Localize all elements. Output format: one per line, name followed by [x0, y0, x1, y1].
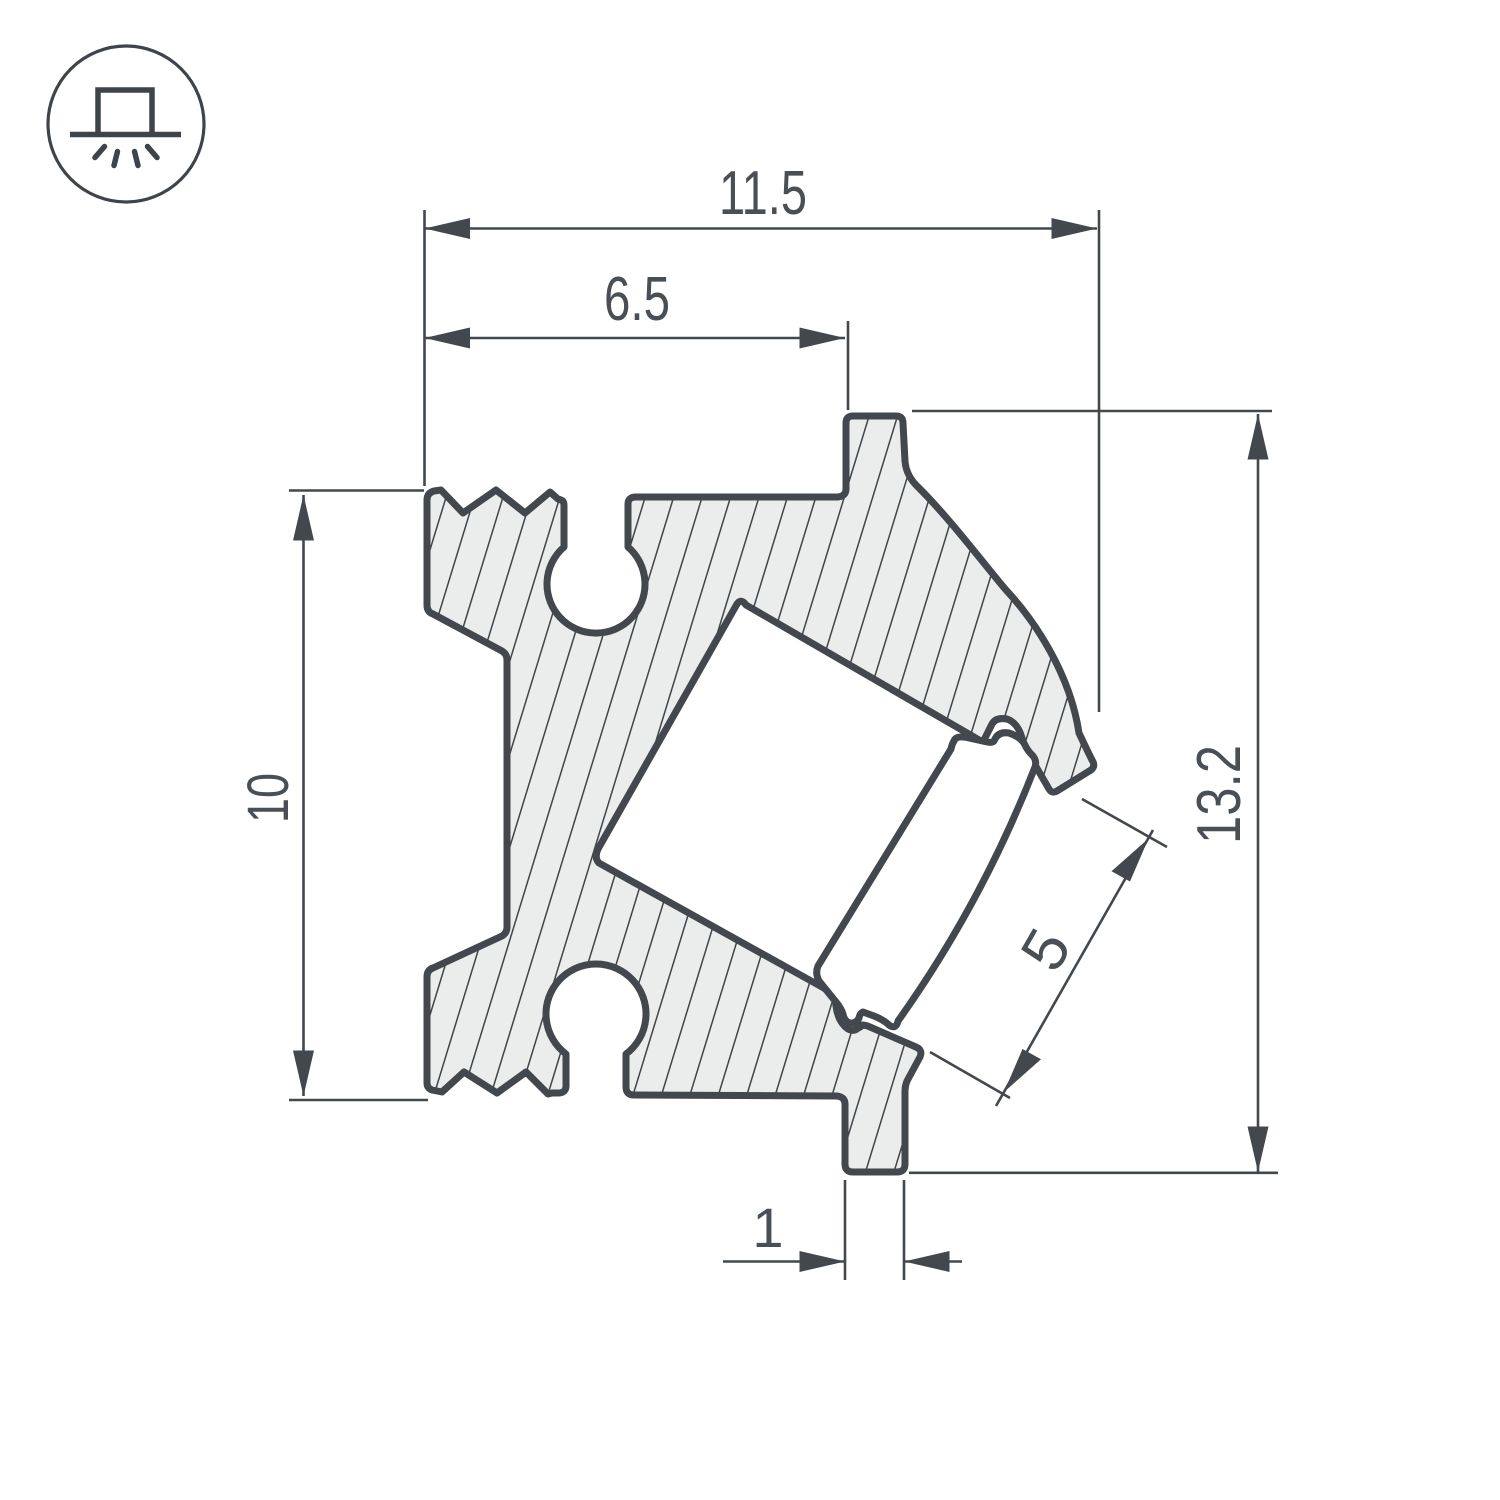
svg-text:11.5: 11.5: [719, 159, 807, 228]
svg-text:13.2: 13.2: [1185, 745, 1254, 844]
svg-text:6.5: 6.5: [604, 265, 670, 334]
svg-text:10: 10: [236, 773, 301, 823]
svg-text:1: 1: [752, 1196, 783, 1259]
